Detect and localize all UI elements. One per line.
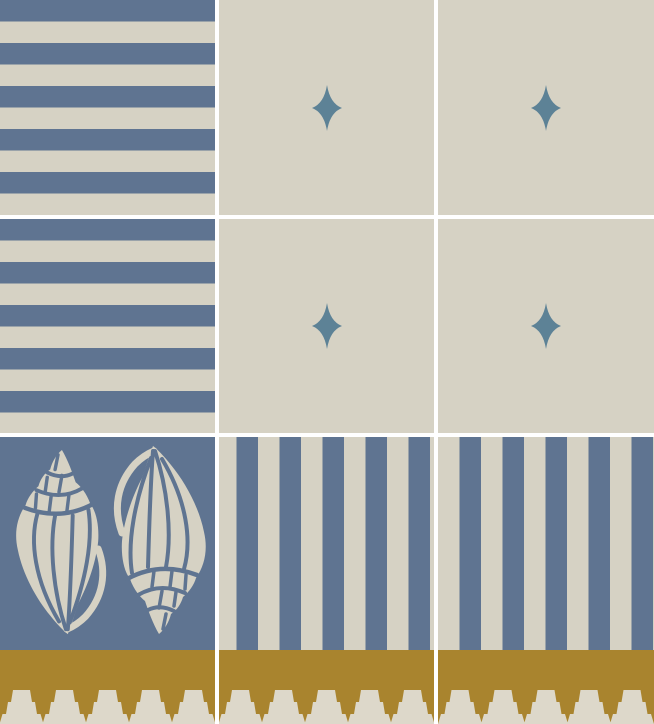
tile-sparkle-star-1 [219,0,434,215]
tile-sparkle-star-2 [438,0,654,215]
sparkle-star-icon [530,84,562,132]
tile-seashells [0,437,215,650]
sparkle-star-icon [311,84,343,132]
tile-sparkle-star-4 [438,219,654,433]
bottom-cell-3 [438,437,654,724]
border-frieze-segment-2 [219,650,434,724]
stepped-crown-icon-row [0,650,215,724]
bottom-cell-1 [0,437,215,724]
stepped-crown-icon-row [438,650,654,724]
sparkle-star-icon [311,302,343,350]
seashells-icon [0,437,215,650]
tile-horizontal-stripes-1 [0,0,215,215]
tile-horizontal-stripes-2 [0,219,215,433]
border-frieze-segment-1 [0,650,215,724]
tile-pattern-board [0,0,654,724]
bottom-cell-2 [219,437,434,724]
sparkle-star-icon [530,302,562,350]
stepped-crown-icon-row [219,650,434,724]
border-frieze-segment-3 [438,650,654,724]
tile-vertical-stripes-2 [438,437,654,650]
tile-vertical-stripes-1 [219,437,434,650]
tile-sparkle-star-3 [219,219,434,433]
